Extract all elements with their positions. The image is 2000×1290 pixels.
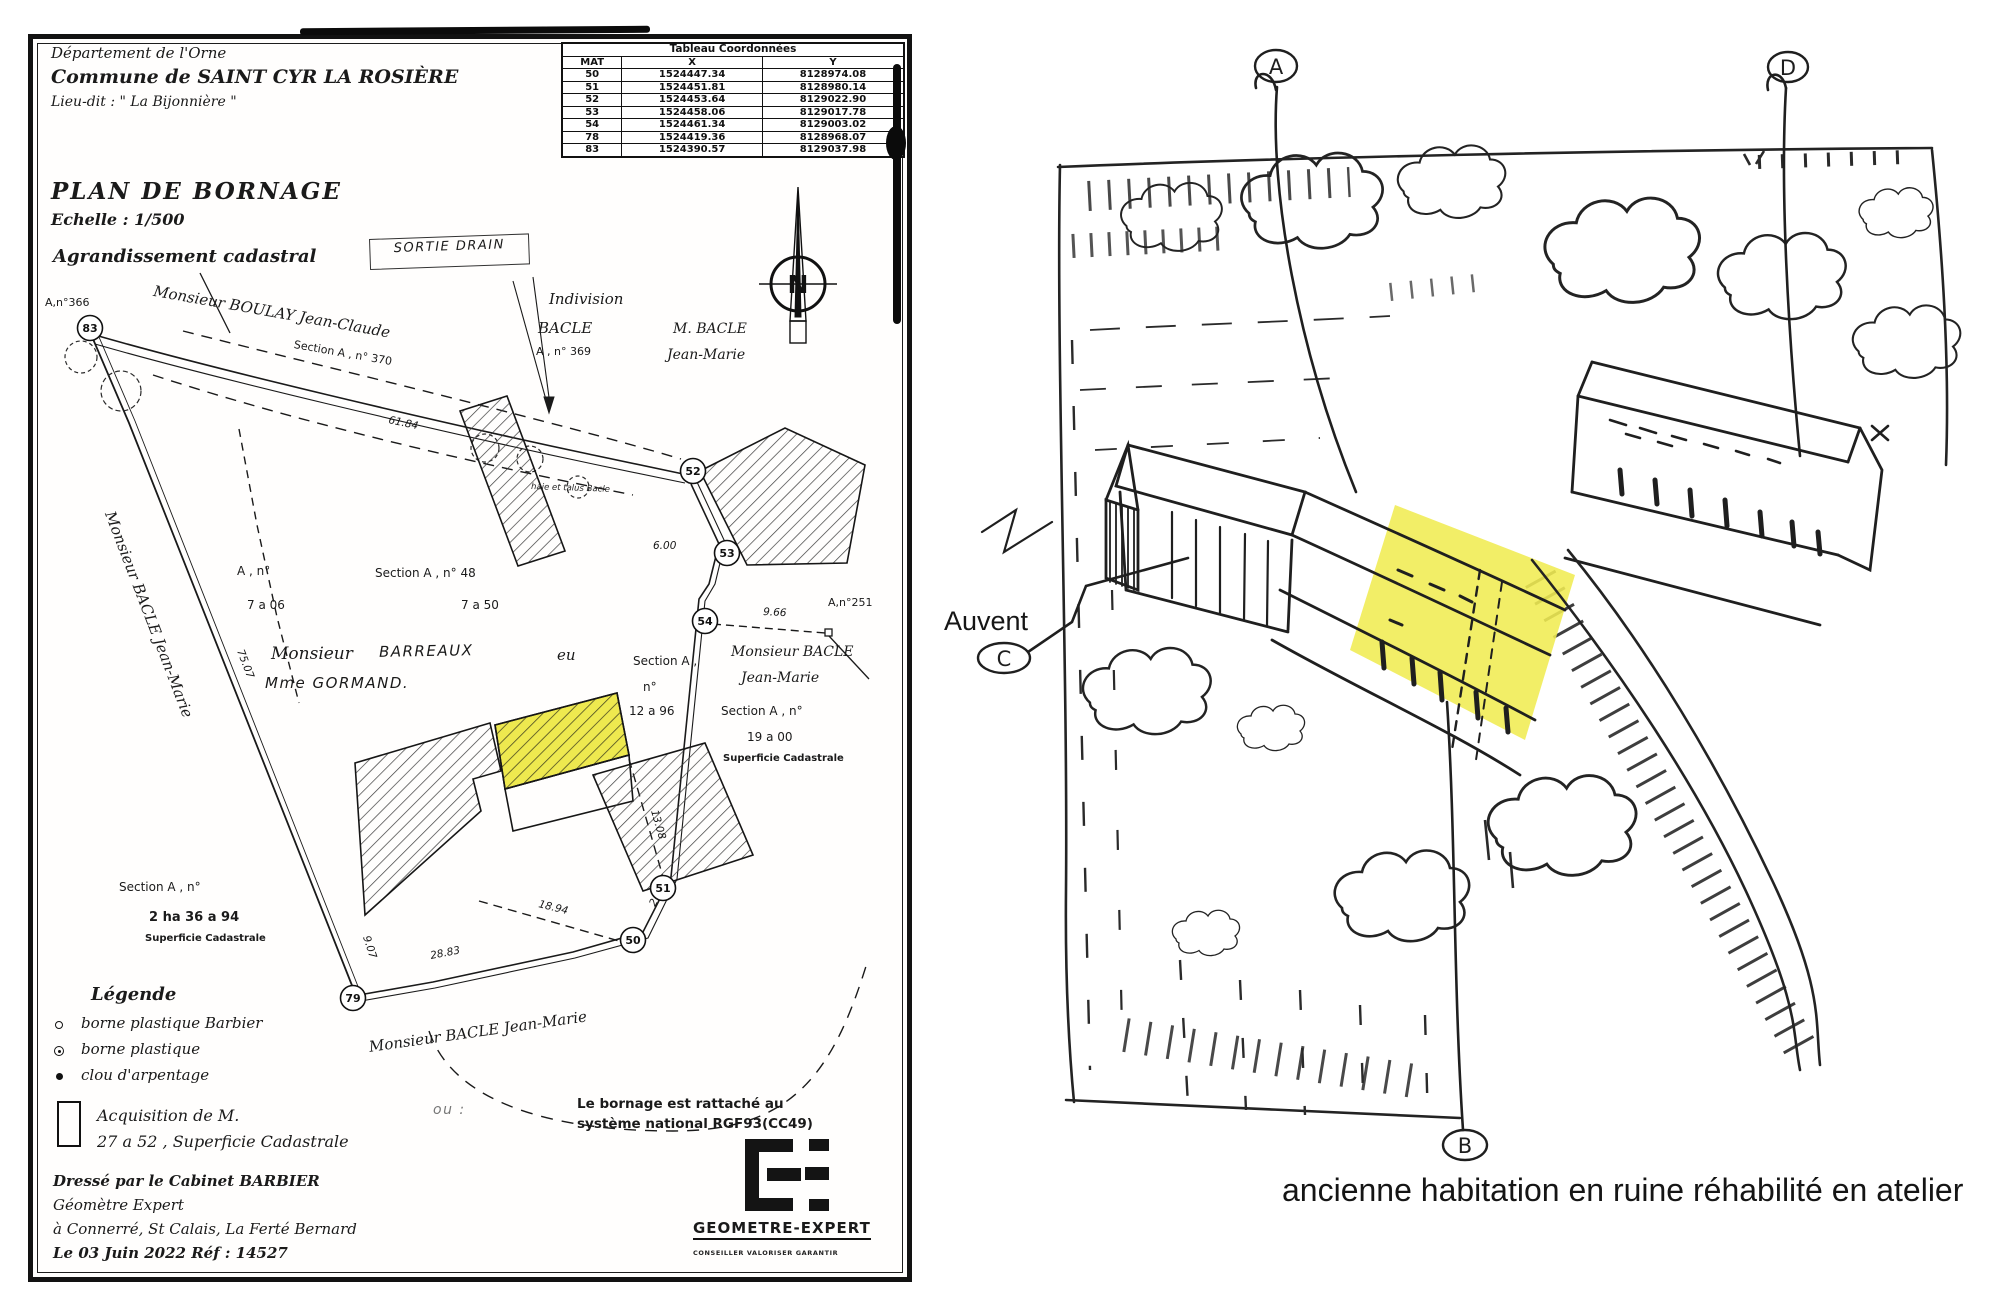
owner-bacle-right-1: Monsieur BACLE	[731, 645, 854, 660]
parcel-left-1: A , n°	[237, 565, 270, 578]
point-51: 51	[651, 876, 676, 901]
col-y: Y	[762, 56, 904, 69]
coord-row: 541524461.348129003.02	[562, 119, 904, 132]
col-x: X	[622, 56, 763, 69]
section-mid-2: n°	[643, 681, 657, 694]
section-48: Section A , n° 48	[375, 567, 476, 580]
road-lines	[93, 335, 725, 1001]
highlighted-building-sketch	[1350, 505, 1575, 740]
point-54: 54	[693, 609, 718, 634]
acquisition-hand-note: ou :	[433, 1103, 466, 1118]
acquisition-symbol	[57, 1101, 81, 1147]
footer-line-4: Le 03 Juin 2022 Réf : 14527	[53, 1245, 288, 1262]
section-mid-3: 12 a 96	[629, 705, 675, 718]
svg-text:C: C	[997, 647, 1012, 671]
section-bl-1: Section A , n°	[119, 881, 201, 894]
acquisition-line-1: Acquisition de M.	[97, 1107, 239, 1125]
agrandissement-label: Agrandissement cadastral	[53, 247, 316, 267]
point-52: 52	[681, 459, 706, 484]
georef-line-2: système national RGF93(CC49)	[577, 1117, 813, 1132]
svg-text:79: 79	[345, 992, 360, 1005]
section-right-1: Section A , n°	[721, 705, 803, 718]
dim-75-07: 75.07	[234, 648, 256, 681]
svg-text:A: A	[1269, 55, 1284, 79]
sortie-drain-box: SORTIE DRAIN	[369, 233, 530, 270]
sketch-drawing: A D B C	[920, 30, 1990, 1260]
logo-tagline: CONSEILLER VALORISER GARANTIR	[693, 1249, 838, 1257]
footer-line-1: Dressé par le Cabinet BARBIER	[53, 1173, 320, 1190]
parcel-366: A,n°366	[45, 297, 90, 309]
svg-text:54: 54	[697, 615, 713, 628]
sketch-trees	[1083, 145, 1960, 955]
indivision-2: BACLE	[538, 320, 592, 337]
dim-6-00: 6.00	[653, 540, 677, 552]
section-right-3: Superficie Cadastrale	[723, 753, 844, 764]
svg-text:50: 50	[625, 934, 641, 947]
legend-symbol-circle-dot	[54, 1046, 64, 1056]
legend-item-2: borne plastique	[81, 1041, 200, 1058]
commune-line: Commune de SAINT CYR LA ROSIÈRE	[51, 67, 458, 88]
owner-mid-handwritten: BARREAUX	[379, 642, 474, 660]
point-50: 50	[621, 928, 646, 953]
north-letter: N	[788, 270, 809, 299]
svg-text:83: 83	[82, 322, 97, 335]
svg-text:51: 51	[655, 882, 670, 895]
indivision-1: Indivision	[549, 291, 623, 308]
parcel-left-2: 7 a 06	[247, 599, 285, 612]
department-line: Département de l'Orne	[51, 45, 226, 62]
north-arrow: N	[759, 187, 837, 343]
coord-row: 831524390.578129037.98	[562, 144, 904, 157]
legend-item-3: clou d'arpentage	[81, 1067, 209, 1084]
owner-mbacle-2: Jean-Marie	[667, 348, 745, 363]
sketch-caption: ancienne habitation en ruine réhabilité …	[1282, 1172, 1963, 1209]
dim-9-66: 9.66	[763, 606, 787, 619]
section-bl-3: Superficie Cadastrale	[145, 933, 266, 944]
dim-61-84: 61.84	[387, 414, 419, 432]
footer-line-2: Géomètre Expert	[53, 1197, 184, 1214]
svg-text:52: 52	[685, 465, 700, 478]
legend-item-1: borne plastique Barbier	[81, 1015, 262, 1032]
legend-symbol-circle	[55, 1021, 63, 1029]
plan-de-bornage-sheet: N 61.84 75.07 6.00 9.66 13.08 18.94 28.8…	[28, 34, 912, 1282]
marker-a: A	[1255, 50, 1297, 82]
section-bl-2: 2 ha 36 a 94	[149, 911, 239, 925]
lieu-dit-line: Lieu-dit : " La Bijonnière "	[51, 95, 237, 110]
owner-bacle-right-2: Jean-Marie	[741, 671, 819, 686]
logo-name: GEOMETRE-EXPERT	[693, 1219, 871, 1240]
marker-d: D	[1768, 52, 1808, 82]
scan-smudge	[893, 64, 901, 324]
owner-mid-et: eu	[557, 647, 576, 664]
coord-row: 781524419.368128968.07	[562, 131, 904, 144]
hand-sketch-panel: A D B C Auvent ancienne habitation en ru…	[920, 30, 1990, 1270]
col-mat: MAT	[562, 56, 622, 69]
dim-18-94: 18.94	[537, 898, 569, 917]
georef-line-1: Le bornage est rattaché au	[577, 1097, 784, 1112]
svg-text:53: 53	[719, 547, 734, 560]
section-right-2: 19 a 00	[747, 731, 793, 744]
owner-mid-printed: Monsieur	[271, 645, 353, 664]
coord-row: 501524447.348128974.08	[562, 69, 904, 82]
svg-text:D: D	[1780, 56, 1796, 80]
auvent-label: Auvent	[944, 606, 1028, 637]
plan-title: PLAN DE BORNAGE	[51, 179, 342, 204]
scanned-survey-document: N 61.84 75.07 6.00 9.66 13.08 18.94 28.8…	[0, 0, 2000, 1290]
coord-row: 521524453.648129022.90	[562, 94, 904, 107]
indivision-3: A , n° 369	[536, 346, 591, 358]
dim-9-07: 9.07	[360, 934, 379, 960]
area-7a50: 7 a 50	[461, 599, 499, 612]
parcel-251: A,n°251	[828, 597, 873, 609]
marker-b: B	[1443, 1130, 1487, 1160]
geometre-expert-logo-icon	[745, 1139, 829, 1217]
coordinate-table: Tableau Coordonnées MAT X Y 501524447.34…	[561, 42, 905, 158]
plan-scale: Echelle : 1/500	[51, 211, 185, 229]
point-79: 79	[341, 986, 366, 1011]
acquisition-line-2: 27 a 52 , Superficie Cadastrale	[97, 1133, 349, 1151]
footer-line-3: à Connerré, St Calais, La Ferté Bernard	[53, 1221, 357, 1238]
marker-c: C	[978, 643, 1030, 673]
dim-28-83: 28.83	[429, 944, 461, 962]
owner-mid-handwritten-2: Mme GORMAND.	[265, 675, 409, 692]
legend-title: Légende	[91, 985, 176, 1005]
coord-row: 531524458.068129017.78	[562, 106, 904, 119]
section-mid-1: Section A ,	[633, 655, 697, 668]
legend-symbol-dot	[56, 1073, 63, 1080]
point-83: 83	[78, 316, 103, 341]
point-53: 53	[715, 541, 740, 566]
coord-row: 511524451.818128980.14	[562, 81, 904, 94]
scan-smudge	[886, 126, 906, 160]
coordinate-table-title: Tableau Coordonnées	[562, 43, 904, 56]
owner-mbacle-1: M. BACLE	[673, 322, 747, 337]
svg-text:B: B	[1458, 1134, 1472, 1158]
